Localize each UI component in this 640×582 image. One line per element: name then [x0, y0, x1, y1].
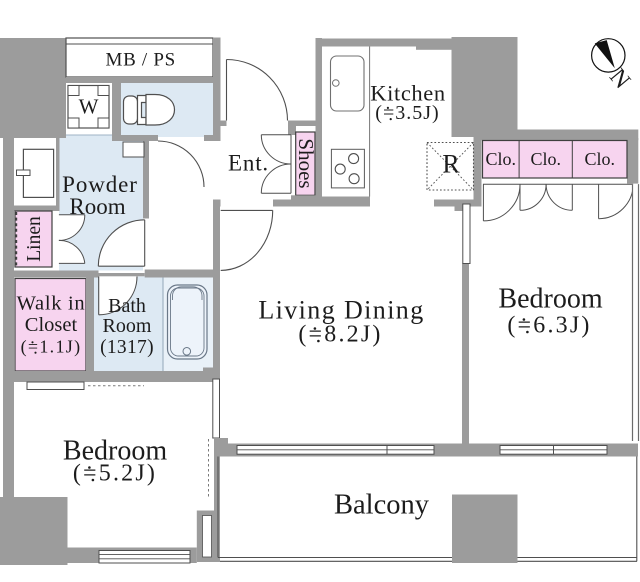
svg-text:Clo.: Clo. [530, 149, 561, 169]
svg-text:Clo.: Clo. [486, 149, 517, 169]
svg-text:(1317): (1317) [100, 337, 154, 358]
svg-text:(=6.3J): (=6.3J) [507, 313, 591, 339]
svg-text:Clo.: Clo. [584, 149, 615, 169]
svg-text:Living Dining: Living Dining [258, 296, 424, 325]
svg-text:Closet: Closet [25, 314, 78, 336]
svg-text:Shoes: Shoes [294, 138, 318, 188]
svg-text:Linen: Linen [24, 216, 45, 262]
svg-text:Balcony: Balcony [334, 490, 430, 521]
svg-text:W: W [79, 95, 99, 119]
svg-text:Bedroom: Bedroom [498, 284, 602, 315]
svg-text:Ent.: Ent. [228, 151, 269, 176]
svg-text:(=1.1J): (=1.1J) [21, 337, 82, 358]
svg-text:(=5.2J): (=5.2J) [73, 461, 157, 487]
svg-text:(=8.2J): (=8.2J) [298, 322, 382, 348]
svg-text:Walk in: Walk in [17, 293, 86, 315]
svg-text:(=3.5J): (=3.5J) [375, 102, 439, 124]
svg-text:R: R [442, 150, 460, 179]
svg-text:Bath: Bath [108, 295, 146, 317]
svg-text:Room: Room [103, 315, 152, 337]
svg-text:MB / PS: MB / PS [106, 50, 176, 71]
